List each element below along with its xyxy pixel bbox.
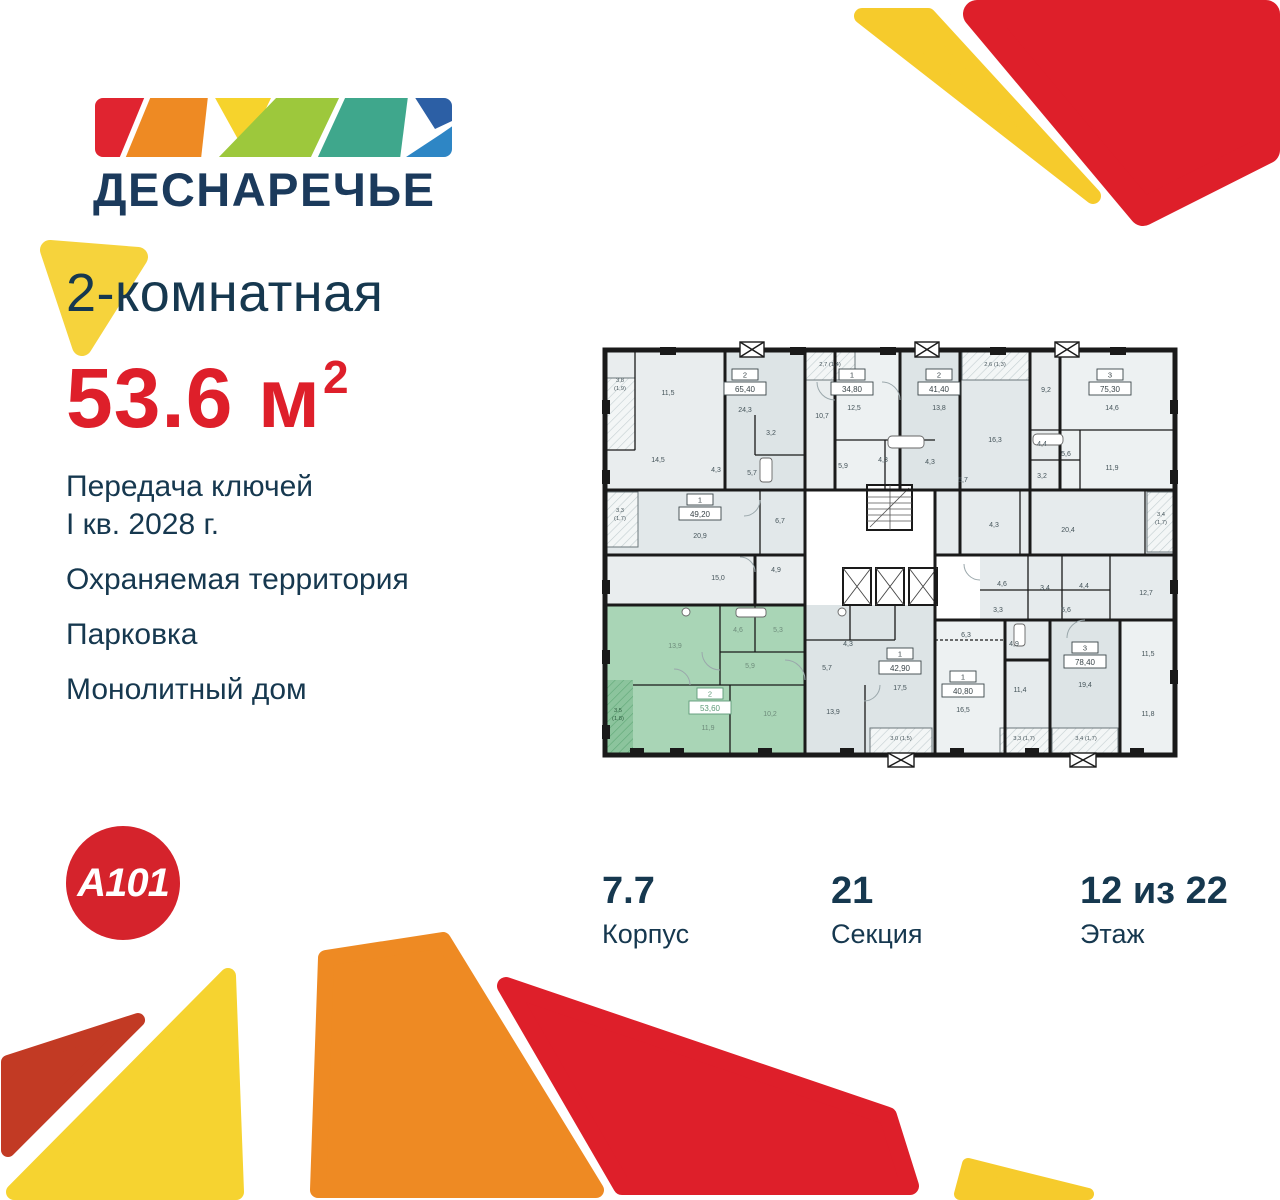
area-unit: м — [258, 351, 321, 445]
room-area-label: 19,4 — [1078, 682, 1092, 689]
room-area-label: 4,4 — [1079, 583, 1089, 590]
room-area-label: 5,7 — [747, 470, 757, 477]
svg-text:49,20: 49,20 — [690, 510, 711, 519]
room-area-label: 11,8 — [1141, 711, 1154, 718]
floor-value: 12 из 22 — [1080, 872, 1228, 910]
room-area-label: 4,3 — [989, 522, 999, 529]
room-area-label: 4,3 — [711, 467, 721, 474]
svg-text:2: 2 — [743, 371, 747, 380]
room-area-label: 3,4 — [1157, 512, 1166, 518]
elevators — [843, 568, 937, 605]
room-area-label: 13,8 — [932, 405, 946, 412]
svg-text:2: 2 — [937, 371, 941, 380]
svg-text:2: 2 — [708, 690, 712, 699]
room-area-label: 4,3 — [925, 459, 935, 466]
svg-text:40,80: 40,80 — [953, 687, 974, 696]
room-area-label: (1,7) — [1155, 520, 1167, 526]
room-area-label: 13,9 — [668, 643, 682, 650]
plan-unit-fills — [605, 350, 1175, 755]
svg-text:3: 3 — [1108, 371, 1112, 380]
room-area-label: 10,7 — [815, 413, 829, 420]
room-area-label: 4,9 — [1009, 641, 1019, 648]
room-area-label: 11,4 — [1013, 687, 1026, 694]
room-area-label: 10,2 — [763, 711, 777, 718]
area-value: 53.6 — [66, 351, 234, 445]
room-area-label: 3,0 (1,5) — [890, 736, 912, 742]
svg-text:75,30: 75,30 — [1100, 385, 1121, 394]
room-area-label: 2,7 (1,4) — [819, 362, 841, 368]
detail-floor: 12 из 22 Этаж — [1080, 872, 1228, 950]
feature-item-1: Охраняемая территория — [66, 561, 546, 599]
room-area-label: 15,0 — [711, 575, 725, 582]
room-area-label: 5,9 — [745, 663, 755, 670]
svg-text:65,40: 65,40 — [735, 385, 756, 394]
room-area-label: (1,7) — [614, 516, 626, 522]
svg-text:1: 1 — [698, 496, 702, 505]
floor-label: Этаж — [1080, 919, 1228, 950]
floor-plan: 3,8(1,9)11,524,314,54,35,73,22,7 (1,4)10… — [590, 340, 1190, 770]
room-area-label: 20,9 — [693, 533, 707, 540]
room-area-label: 2,6 (1,3) — [984, 362, 1006, 368]
feature-item-0: Передача ключей I кв. 2028 г. — [66, 468, 546, 544]
room-area-label: (1,8) — [612, 716, 624, 722]
room-area-label: 14,6 — [1105, 405, 1119, 412]
room-area-label: 11,9 — [701, 725, 714, 732]
room-area-label: 5,7 — [958, 477, 968, 484]
stairs — [867, 485, 912, 530]
room-area-label: 12,5 — [847, 405, 861, 412]
room-area-label: 3,5 — [614, 708, 622, 714]
room-area-label: 11,5 — [1141, 651, 1154, 658]
room-area-label: 11,9 — [1105, 465, 1118, 472]
room-area-label: 5,6 — [1061, 607, 1071, 614]
room-area-label: (1,9) — [614, 386, 626, 392]
detail-building: 7.7 Корпус — [602, 872, 689, 950]
room-area-label: 17,5 — [893, 685, 907, 692]
room-area-label: 3,8 — [616, 378, 624, 384]
room-area-label: 13,9 — [826, 709, 840, 716]
room-area-label: 6,7 — [775, 518, 785, 525]
room-area-label: 16,3 — [988, 437, 1002, 444]
svg-text:53,60: 53,60 — [700, 704, 721, 713]
room-area-label: 3,3 (1,7) — [1013, 736, 1035, 742]
room-area-label: 12,7 — [1139, 590, 1153, 597]
room-area-label: 5,6 — [1061, 451, 1071, 458]
room-area-label: 3,2 — [1037, 473, 1047, 480]
svg-text:1: 1 — [850, 371, 854, 380]
building-label: Корпус — [602, 919, 689, 950]
room-area-label: 3,3 — [616, 508, 624, 514]
building-value: 7.7 — [602, 872, 689, 910]
area-superscript: 2 — [323, 351, 350, 403]
svg-text:3: 3 — [1083, 644, 1087, 653]
room-area-label: 3,4 — [1040, 585, 1050, 592]
svg-text:42,90: 42,90 — [890, 664, 911, 673]
svg-text:78,40: 78,40 — [1075, 658, 1096, 667]
room-area-label: 5,3 — [773, 627, 783, 634]
room-area-label: 4,4 — [1037, 441, 1047, 448]
room-area-label: 5,9 — [838, 463, 848, 470]
room-area-label: 16,5 — [956, 707, 970, 714]
svg-text:1: 1 — [961, 673, 965, 682]
svg-text:41,40: 41,40 — [929, 385, 950, 394]
room-area-label: 4,6 — [997, 581, 1007, 588]
svg-text:1: 1 — [898, 650, 902, 659]
room-area-label: 4,6 — [733, 627, 743, 634]
apartment-area: 53.6 м2 — [66, 350, 348, 447]
feature-item-2: Парковка — [66, 616, 546, 654]
room-area-label: 4,3 — [843, 641, 853, 648]
room-area-label: 6,3 — [961, 632, 971, 639]
feature-list: Передача ключей I кв. 2028 г.Охраняемая … — [66, 468, 546, 726]
room-area-label: 3,4 (1,7) — [1075, 736, 1097, 742]
apartment-type-title: 2-комнатная — [66, 262, 383, 324]
room-area-label: 3,3 — [993, 607, 1003, 614]
developer-logo[interactable]: A101 — [66, 826, 180, 940]
room-area-label: 5,7 — [822, 665, 832, 672]
detail-section: 21 Секция — [831, 872, 923, 950]
room-area-label: 4,9 — [771, 567, 781, 574]
developer-logo-text: A101 — [77, 861, 169, 906]
room-area-label: 24,3 — [738, 407, 752, 414]
room-area-label: 14,5 — [651, 457, 665, 464]
feature-item-3: Монолитный дом — [66, 671, 546, 709]
room-area-label: 9,2 — [1041, 387, 1051, 394]
section-label: Секция — [831, 919, 923, 950]
room-area-label: 11,5 — [661, 390, 674, 397]
room-area-label: 20,4 — [1061, 527, 1075, 534]
project-wordmark: ДЕСНАРЕЧЬЕ — [93, 162, 436, 217]
room-area-label: 4,3 — [878, 457, 888, 464]
svg-text:34,80: 34,80 — [842, 385, 863, 394]
section-value: 21 — [831, 872, 923, 910]
room-area-label: 3,2 — [766, 430, 776, 437]
